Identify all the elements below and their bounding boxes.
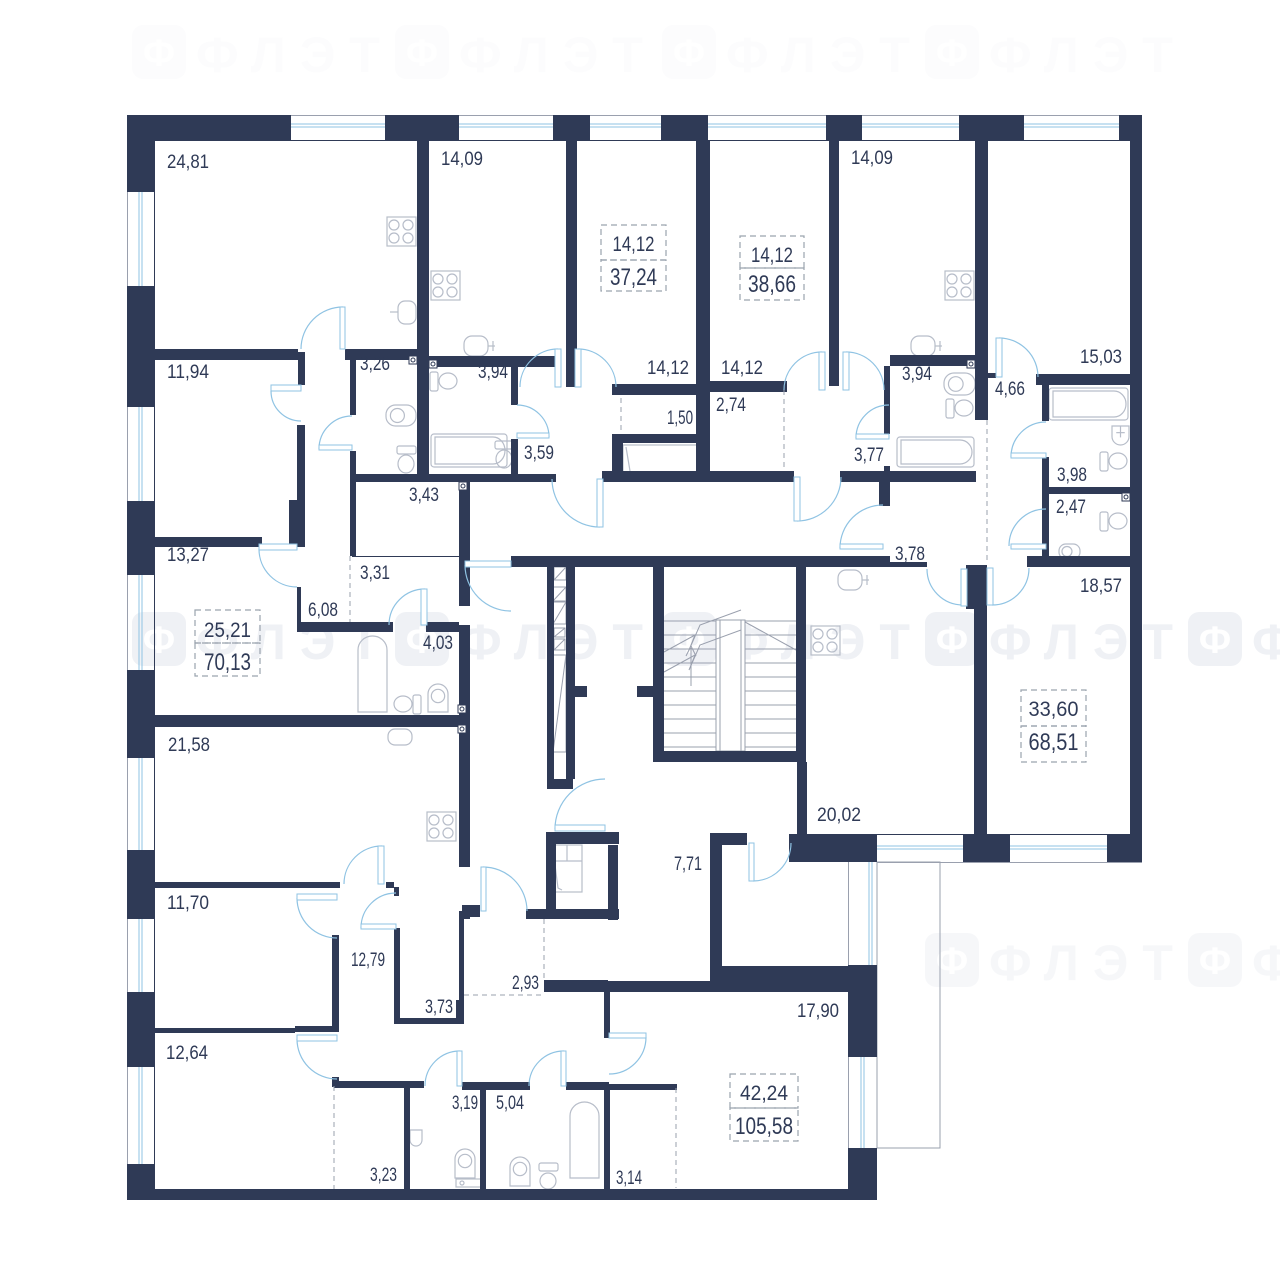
svg-text:70,13: 70,13 xyxy=(204,649,251,676)
svg-text:14,12: 14,12 xyxy=(647,358,689,379)
svg-text:Ф: Ф xyxy=(673,33,705,75)
svg-text:21,58: 21,58 xyxy=(168,735,210,756)
svg-text:2,93: 2,93 xyxy=(512,973,539,994)
svg-text:38,66: 38,66 xyxy=(748,271,796,298)
svg-text:3,31: 3,31 xyxy=(360,563,390,584)
svg-text:ФЛЭТ: ФЛЭТ xyxy=(196,27,394,83)
svg-text:Ф: Ф xyxy=(1199,620,1231,662)
svg-text:105,58: 105,58 xyxy=(735,1113,793,1140)
svg-text:12,64: 12,64 xyxy=(166,1043,208,1064)
svg-text:3,73: 3,73 xyxy=(425,997,453,1018)
svg-text:3,26: 3,26 xyxy=(360,354,390,375)
svg-text:3,43: 3,43 xyxy=(409,485,439,506)
svg-text:Ф: Ф xyxy=(673,620,705,662)
svg-text:18,57: 18,57 xyxy=(1080,576,1122,597)
svg-text:14,09: 14,09 xyxy=(851,148,893,169)
svg-text:33,60: 33,60 xyxy=(1029,698,1079,721)
svg-text:ФЛЭТ: ФЛЭТ xyxy=(726,614,924,670)
svg-text:4,03: 4,03 xyxy=(423,633,453,654)
svg-text:Ф: Ф xyxy=(936,941,968,983)
svg-text:3,78: 3,78 xyxy=(895,544,925,565)
svg-text:2,47: 2,47 xyxy=(1056,497,1086,518)
svg-text:ФЛЭТ: ФЛЭТ xyxy=(1252,935,1280,991)
svg-text:Ф: Ф xyxy=(406,33,438,75)
svg-text:12,79: 12,79 xyxy=(351,950,385,971)
svg-text:3,14: 3,14 xyxy=(616,1168,642,1189)
svg-text:7,71: 7,71 xyxy=(674,854,702,875)
svg-text:Ф: Ф xyxy=(143,33,175,75)
svg-text:24,81: 24,81 xyxy=(167,152,209,173)
svg-text:1,50: 1,50 xyxy=(667,408,693,429)
svg-text:ФЛЭТ: ФЛЭТ xyxy=(1252,614,1280,670)
svg-text:14,12: 14,12 xyxy=(721,358,763,379)
svg-text:Ф: Ф xyxy=(936,33,968,75)
svg-text:ФЛЭТ: ФЛЭТ xyxy=(989,27,1187,83)
svg-text:ФЛЭТ: ФЛЭТ xyxy=(989,614,1187,670)
svg-text:Ф: Ф xyxy=(1199,941,1231,983)
svg-text:Ф: Ф xyxy=(143,620,175,662)
svg-text:14,09: 14,09 xyxy=(441,149,483,170)
svg-text:4,66: 4,66 xyxy=(995,379,1025,400)
svg-text:3,94: 3,94 xyxy=(902,364,932,385)
svg-text:6,08: 6,08 xyxy=(308,600,338,621)
svg-text:ФЛЭТ: ФЛЭТ xyxy=(726,27,924,83)
svg-text:11,94: 11,94 xyxy=(167,362,209,383)
svg-text:5,04: 5,04 xyxy=(496,1093,524,1114)
svg-text:14,12: 14,12 xyxy=(751,244,793,267)
svg-text:Ф: Ф xyxy=(936,620,968,662)
svg-text:14,12: 14,12 xyxy=(613,233,655,256)
svg-text:3,94: 3,94 xyxy=(478,362,508,383)
svg-text:3,98: 3,98 xyxy=(1057,465,1087,486)
svg-text:20,02: 20,02 xyxy=(817,805,861,826)
svg-text:3,23: 3,23 xyxy=(370,1165,397,1186)
svg-text:42,24: 42,24 xyxy=(740,1082,788,1105)
svg-text:15,03: 15,03 xyxy=(1080,347,1122,368)
svg-text:68,51: 68,51 xyxy=(1029,729,1079,756)
svg-text:ФЛЭТ: ФЛЭТ xyxy=(989,935,1187,991)
svg-text:25,21: 25,21 xyxy=(204,619,251,642)
svg-text:11,70: 11,70 xyxy=(167,893,209,914)
svg-text:3,19: 3,19 xyxy=(452,1093,478,1114)
svg-text:17,90: 17,90 xyxy=(797,1001,839,1022)
svg-text:2,74: 2,74 xyxy=(716,395,746,416)
svg-text:3,77: 3,77 xyxy=(854,445,884,466)
svg-text:ФЛЭТ: ФЛЭТ xyxy=(459,27,657,83)
svg-text:3,59: 3,59 xyxy=(524,443,554,464)
svg-text:13,27: 13,27 xyxy=(167,545,209,566)
svg-text:37,24: 37,24 xyxy=(610,264,657,291)
